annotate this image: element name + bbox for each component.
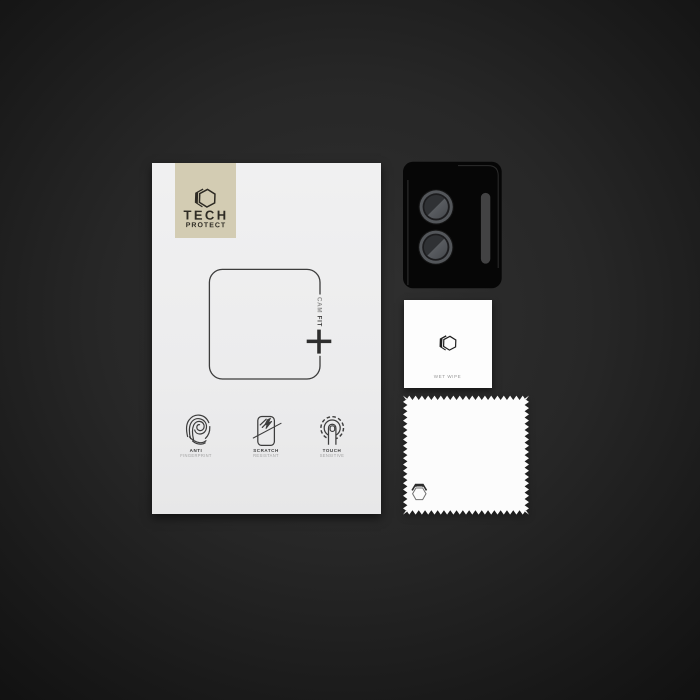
- svg-text:CAM FIT: CAM FIT: [316, 297, 323, 327]
